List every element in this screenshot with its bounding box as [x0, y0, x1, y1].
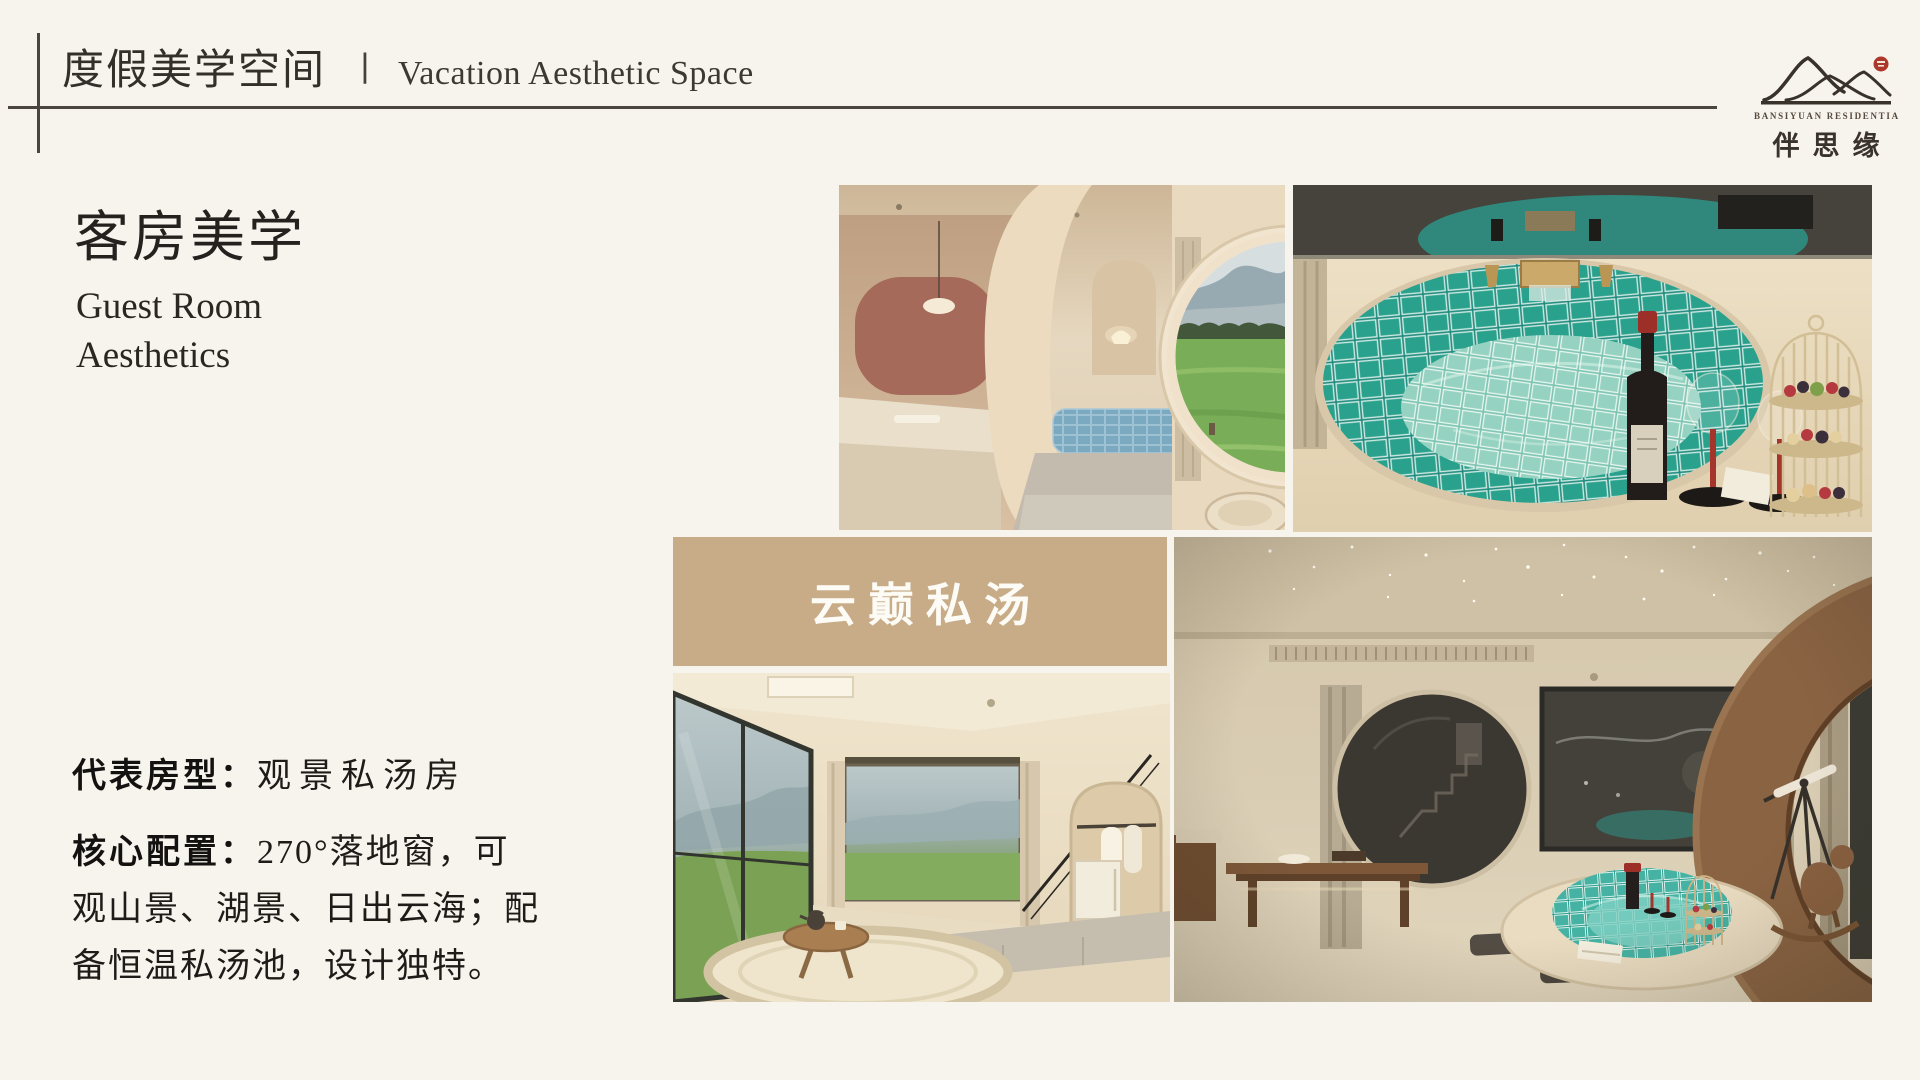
logo-red-seal-icon: [1874, 57, 1889, 72]
page-title-separator: 丨: [348, 52, 382, 89]
photo-bathroom-round-window: [839, 185, 1285, 530]
photo-green-tub-illustration: [1293, 185, 1872, 532]
photo-green-tile-tub: [1293, 185, 1872, 532]
presentation-slide: 度假美学空间丨Vacation Aesthetic Space BANSIYUA…: [0, 0, 1920, 1080]
page-title: 度假美学空间丨Vacation Aesthetic Space: [62, 36, 754, 97]
room-type-value: 观景私汤房: [257, 758, 467, 795]
page-title-zh: 度假美学空间: [62, 48, 326, 94]
logo-name-zh: 伴思缘: [1754, 124, 1898, 163]
room-config-label: 核心配置：: [72, 834, 257, 871]
room-name-badge: 云巅私汤: [673, 537, 1167, 666]
section-heading-en: Guest Room Aesthetics: [76, 282, 262, 380]
photo-lounge-illustration: [673, 673, 1170, 1002]
room-details: 代表房型：观景私汤房 核心配置：270°落地窗，可 观山景、湖景、日出云海；配 …: [72, 748, 632, 995]
room-config-paragraph: 核心配置：270°落地窗，可 观山景、湖景、日出云海；配 备恒温私汤池，设计独特…: [72, 824, 632, 995]
room-type-label: 代表房型：: [72, 758, 257, 795]
room-config-line3: 备恒温私汤池，设计独特。: [72, 938, 632, 995]
brand-logo: BANSIYUAN RESIDENTIA 伴思缘: [1754, 50, 1898, 163]
photo-window-lounge: [673, 673, 1170, 1002]
room-type-line: 代表房型：观景私汤房: [72, 748, 632, 805]
room-name-badge-label: 云巅私汤: [798, 569, 1042, 635]
header-vertical-rule: [37, 33, 40, 153]
photo-bathroom-illustration: [839, 185, 1285, 530]
section-heading-en-line1: Guest Room: [76, 282, 262, 331]
logo-mountains-icon: [1756, 50, 1896, 108]
header-horizontal-rule: [8, 106, 1717, 109]
photo-suite-night-tub: [1174, 537, 1872, 1002]
logo-baseline: [1761, 101, 1891, 105]
logo-name-en: BANSIYUAN RESIDENTIA: [1754, 111, 1898, 121]
section-heading-en-line2: Aesthetics: [76, 331, 262, 380]
room-config-line1: 270°落地窗，可: [257, 834, 510, 871]
room-config-line2: 观山景、湖景、日出云海；配: [72, 881, 632, 938]
photo-suite-illustration: [1174, 537, 1872, 1002]
section-heading-zh: 客房美学: [74, 192, 306, 272]
page-title-en: Vacation Aesthetic Space: [398, 55, 754, 92]
